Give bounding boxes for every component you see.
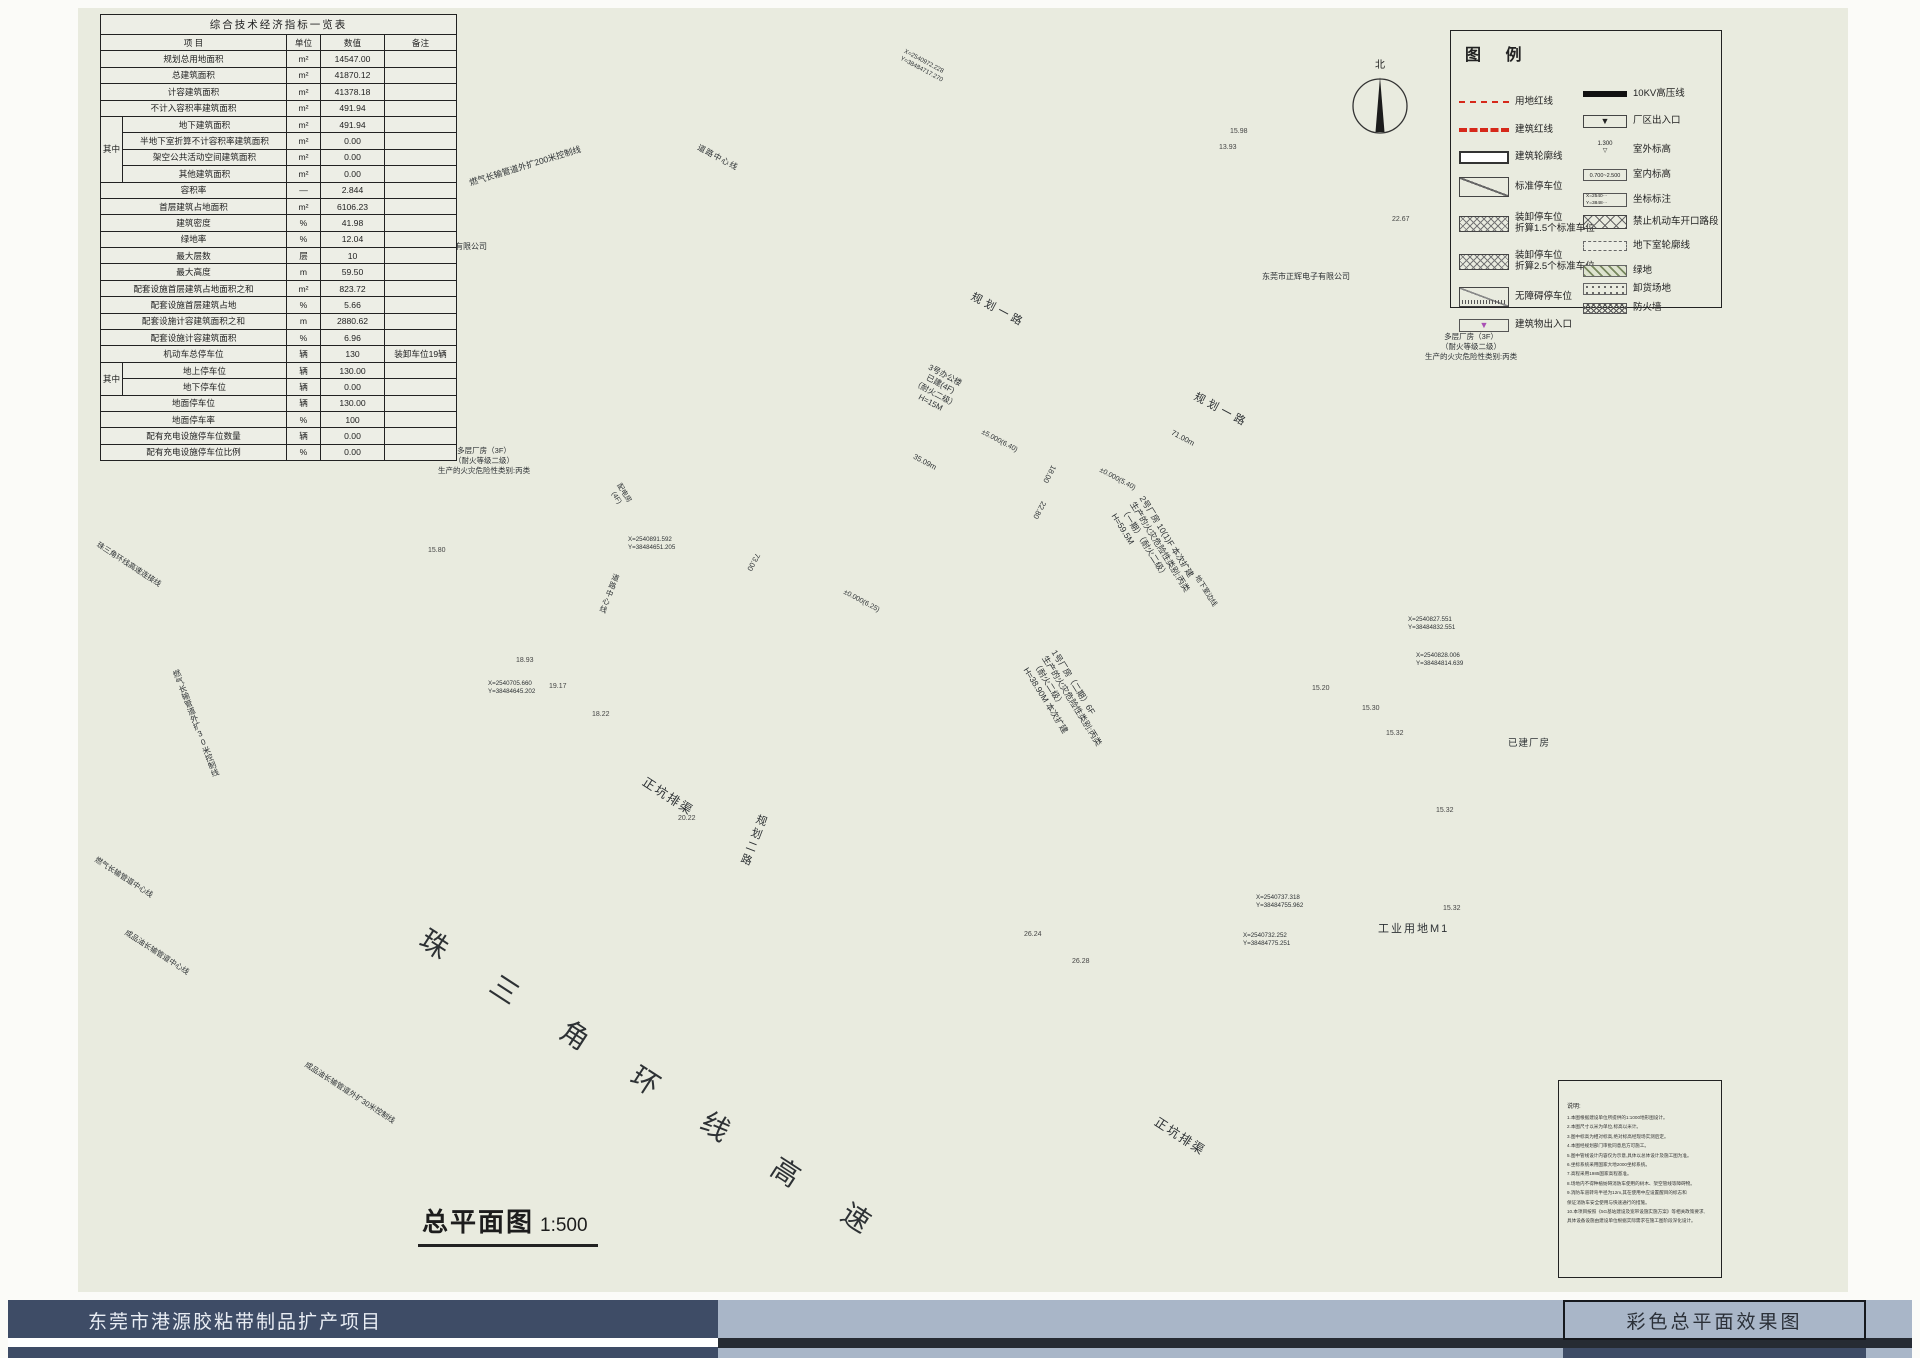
legend-item-label: 卸货场地 bbox=[1633, 284, 1671, 295]
spot-elevation: 15.80 bbox=[428, 546, 446, 555]
table-row: 其中地下建筑面积m²491.94 bbox=[101, 116, 457, 132]
table-cell: 其他建筑面积 bbox=[123, 166, 287, 182]
table-cell: 机动车总停车位 bbox=[101, 346, 287, 362]
table-cell: 总建筑面积 bbox=[101, 67, 287, 83]
map-label-dc1: 多层厂房（3F） （耐火等级二级） 生产的火灾危险性类别:丙类 bbox=[1425, 332, 1517, 361]
spot-elevation: 18.22 bbox=[592, 710, 610, 719]
table-cell: 0.00 bbox=[321, 166, 385, 182]
table-cell: 0.00 bbox=[321, 149, 385, 165]
legend-item: 装卸停车位 折算1.5个标准车位 bbox=[1459, 213, 1595, 235]
table-cell: 计容建筑面积 bbox=[101, 84, 287, 100]
intlvl-icon: 0.700~2.500 bbox=[1583, 169, 1627, 181]
table-cell: 项 目 bbox=[101, 35, 287, 51]
table-cell: 最大层数 bbox=[101, 248, 287, 264]
table-cell: % bbox=[287, 411, 321, 427]
table-cell: 10 bbox=[321, 248, 385, 264]
table-row: 绿地率%12.04 bbox=[101, 231, 457, 247]
table-cell bbox=[385, 411, 457, 427]
table-cell bbox=[385, 297, 457, 313]
legend-item-label: 无障碍停车位 bbox=[1515, 292, 1572, 303]
spot-elevation: 15.32 bbox=[1436, 806, 1454, 815]
table-cell: 0.00 bbox=[321, 379, 385, 395]
spot-elevation: 18.93 bbox=[516, 656, 534, 665]
table-cell: 0.00 bbox=[321, 133, 385, 149]
legend-item: X=2540··· Y=3848···坐标标注 bbox=[1583, 193, 1671, 207]
spot-elevation: 15.32 bbox=[1386, 729, 1404, 738]
note-line: 1.本图根据建设单位所提供的1:1000地形图设计。 bbox=[1567, 1113, 1715, 1122]
table-cell: 辆 bbox=[287, 346, 321, 362]
table-cell bbox=[385, 51, 457, 67]
table-cell bbox=[385, 198, 457, 214]
note-line: 6.坐标系统采用国家大地2000坐标系统。 bbox=[1567, 1160, 1715, 1169]
table-row: 地面停车位辆130.00 bbox=[101, 395, 457, 411]
notes-title: 说明: bbox=[1567, 1101, 1715, 1110]
table-row: 半地下室折算不计容积率建筑面积m²0.00 bbox=[101, 133, 457, 149]
table-cell: 5.66 bbox=[321, 297, 385, 313]
indicator-table: 综合技术经济指标一览表项 目单位数值备注规划总用地面积m²14547.00总建筑… bbox=[100, 14, 457, 461]
table-cell: 单位 bbox=[287, 35, 321, 51]
coord-icon: X=2540··· Y=3848··· bbox=[1583, 193, 1627, 207]
map-label-c6: X=2540737.318 Y=38484755.962 bbox=[1256, 894, 1303, 910]
table-row: 配套设施首层建筑占地%5.66 bbox=[101, 297, 457, 313]
table-cell: 辆 bbox=[287, 428, 321, 444]
legend-item: ▼建筑物出入口 bbox=[1459, 319, 1572, 332]
table-cell bbox=[385, 182, 457, 198]
table-cell: 0.00 bbox=[321, 428, 385, 444]
table-cell: 装卸车位19辆 bbox=[385, 346, 457, 362]
table-cell bbox=[385, 116, 457, 132]
legend-item-label: 地下室轮廓线 bbox=[1633, 241, 1690, 252]
table-cell: 辆 bbox=[287, 395, 321, 411]
acc-icon bbox=[1459, 287, 1509, 307]
spot-elevation: 15.30 bbox=[1362, 704, 1380, 713]
table-cell: 架空公共活动空间建筑面积 bbox=[123, 149, 287, 165]
table-cell: 6.96 bbox=[321, 330, 385, 346]
table-cell: % bbox=[287, 330, 321, 346]
legend-item: 标准停车位 bbox=[1459, 177, 1563, 197]
table-cell: 地下停车位 bbox=[123, 379, 287, 395]
note-line: 具体设备设施由建设单位根据实际需求在施工图阶段深化设计。 bbox=[1567, 1216, 1715, 1225]
legend-item-label: 绿地 bbox=[1633, 266, 1652, 277]
drawing-sheet: 规划一路规划一路规划二路规划二路道路中心线道路中心线燃气长输管道外扩200米控制… bbox=[0, 0, 1920, 1358]
noopen-icon bbox=[1583, 215, 1627, 229]
table-cell bbox=[385, 280, 457, 296]
note-line: 9.消防车道转弯半径为12m,其在使用中应设置醒目的标志和 bbox=[1567, 1188, 1715, 1197]
table-cell: 130.00 bbox=[321, 395, 385, 411]
table-cell: 地面停车率 bbox=[101, 411, 287, 427]
legend-item: 建筑轮廓线 bbox=[1459, 151, 1563, 164]
table-cell bbox=[385, 84, 457, 100]
table-cell bbox=[385, 264, 457, 280]
table-cell: m² bbox=[287, 198, 321, 214]
table-cell: 6106.23 bbox=[321, 198, 385, 214]
table-cell: 59.50 bbox=[321, 264, 385, 280]
sheet-title: 彩色总平面效果图 bbox=[1626, 1307, 1802, 1334]
table-row: 规划总用地面积m²14547.00 bbox=[101, 51, 457, 67]
stall15-icon bbox=[1459, 216, 1509, 232]
legend-item: 1.300▽室外标高 bbox=[1583, 141, 1671, 159]
table-cell: m² bbox=[287, 166, 321, 182]
table-cell: 2880.62 bbox=[321, 313, 385, 329]
table-cell: 地面停车位 bbox=[101, 395, 287, 411]
footer-bar2-left bbox=[8, 1347, 718, 1358]
base-icon bbox=[1583, 241, 1627, 251]
table-cell: 地上停车位 bbox=[123, 362, 287, 378]
table-cell: m² bbox=[287, 51, 321, 67]
legend-item: 用地红线 bbox=[1459, 97, 1553, 108]
green-icon bbox=[1583, 265, 1627, 277]
legend-item-label: 10KV高压线 bbox=[1633, 89, 1685, 100]
fire-icon bbox=[1583, 303, 1627, 314]
table-cell: 配有充电设施停车位比例 bbox=[101, 444, 287, 460]
drawing-title: 总平面图1:500 bbox=[418, 1202, 598, 1247]
table-cell bbox=[385, 428, 457, 444]
table-cell: 辆 bbox=[287, 379, 321, 395]
legend-item-label: 室内标高 bbox=[1633, 170, 1671, 181]
table-row: 最大层数层10 bbox=[101, 248, 457, 264]
legend-item: 禁止机动车开口路段 bbox=[1583, 215, 1719, 229]
legend-item-label: 坐标标注 bbox=[1633, 195, 1671, 206]
table-cell: m bbox=[287, 264, 321, 280]
table-cell: m² bbox=[287, 133, 321, 149]
map-label-gym1: 工业用地M1 bbox=[1378, 922, 1449, 936]
table-cell: 配套设施首层建筑占地面积之和 bbox=[101, 280, 287, 296]
table-cell: 地下建筑面积 bbox=[123, 116, 287, 132]
table-cell bbox=[385, 166, 457, 182]
map-label-c5: X=2540828.006 Y=38484814.639 bbox=[1416, 652, 1463, 668]
table-cell: 130.00 bbox=[321, 362, 385, 378]
table-cell: m² bbox=[287, 84, 321, 100]
legend-item-label: 建筑轮廓线 bbox=[1515, 152, 1563, 163]
legend-item: 10KV高压线 bbox=[1583, 89, 1685, 100]
stall-icon bbox=[1459, 177, 1509, 197]
table-cell: % bbox=[287, 444, 321, 460]
table-row: 其中地上停车位辆130.00 bbox=[101, 362, 457, 378]
table-cell: 41378.18 bbox=[321, 84, 385, 100]
unload-icon bbox=[1583, 283, 1627, 295]
table-cell: 配有充电设施停车位数量 bbox=[101, 428, 287, 444]
table-cell: m² bbox=[287, 280, 321, 296]
spot-elevation: 15.98 bbox=[1230, 127, 1248, 136]
spot-elevation: 26.24 bbox=[1024, 930, 1042, 939]
legend-item: 卸货场地 bbox=[1583, 283, 1671, 295]
north-arrow: 北 bbox=[1338, 56, 1422, 148]
spot-elevation: 15.20 bbox=[1312, 684, 1330, 693]
table-cell: 综合技术经济指标一览表 bbox=[101, 15, 457, 35]
table-row: 配有充电设施停车位比例%0.00 bbox=[101, 444, 457, 460]
project-title: 东莞市港源胶粘带制品扩产项目 bbox=[88, 1307, 382, 1334]
note-line: 保证消防车安全使用与快速通行的措施。 bbox=[1567, 1198, 1715, 1207]
table-cell: 其中 bbox=[101, 116, 123, 182]
extlvl-icon: 1.300▽ bbox=[1583, 141, 1627, 159]
legend-item: 无障碍停车位 bbox=[1459, 287, 1572, 307]
table-cell: m bbox=[287, 313, 321, 329]
table-cell: 最大高度 bbox=[101, 264, 287, 280]
table-cell: m² bbox=[287, 67, 321, 83]
note-line: 3.图中标高为相对标高,绝对标高经现场实测后定。 bbox=[1567, 1132, 1715, 1141]
map-label-c4: X=2540827.551 Y=38484832.551 bbox=[1408, 616, 1455, 632]
spot-elevation: 22.67 bbox=[1392, 215, 1410, 224]
legend-panel: 图 例 用地红线建筑红线建筑轮廓线标准停车位装卸停车位 折算1.5个标准车位装卸… bbox=[1450, 30, 1722, 308]
table-cell bbox=[385, 395, 457, 411]
table-cell: % bbox=[287, 297, 321, 313]
table-cell: 半地下室折算不计容积率建筑面积 bbox=[123, 133, 287, 149]
table-cell: % bbox=[287, 215, 321, 231]
table-cell: 备注 bbox=[385, 35, 457, 51]
sheet-title-box: 彩色总平面效果图 bbox=[1563, 1300, 1866, 1340]
table-cell: 14547.00 bbox=[321, 51, 385, 67]
spot-elevation: 19.17 bbox=[549, 682, 567, 691]
red-thick-icon bbox=[1459, 128, 1509, 132]
legend-item: 装卸停车位 折算2.5个标准车位 bbox=[1459, 251, 1595, 273]
table-row: 其他建筑面积m²0.00 bbox=[101, 166, 457, 182]
legend-item-label: 防火墙 bbox=[1633, 303, 1662, 314]
table-cell: 层 bbox=[287, 248, 321, 264]
table-cell: — bbox=[287, 182, 321, 198]
table-cell: 491.94 bbox=[321, 100, 385, 116]
table-cell: 容积率 bbox=[101, 182, 287, 198]
table-cell bbox=[385, 133, 457, 149]
table-row: 地面停车率%100 bbox=[101, 411, 457, 427]
table-cell: m² bbox=[287, 100, 321, 116]
legend-item-label: 室外标高 bbox=[1633, 145, 1671, 156]
note-line: 7.高程采用1985国家高程基准。 bbox=[1567, 1169, 1715, 1178]
hv-icon bbox=[1583, 91, 1627, 97]
table-cell: 100 bbox=[321, 411, 385, 427]
table-cell: 绿地率 bbox=[101, 231, 287, 247]
table-cell bbox=[385, 330, 457, 346]
map-label-yjcf: 已建厂房 bbox=[1508, 738, 1550, 750]
table-row: 机动车总停车位辆130装卸车位19辆 bbox=[101, 346, 457, 362]
note-line: 2.本图尺寸以米为单位,标高以米计。 bbox=[1567, 1122, 1715, 1131]
spot-elevation: 20.22 bbox=[678, 814, 696, 823]
table-cell bbox=[385, 100, 457, 116]
table-row: 首层建筑占地面积m²6106.23 bbox=[101, 198, 457, 214]
table-cell: % bbox=[287, 231, 321, 247]
map-label-c3: X=2540705.660 Y=38484645.202 bbox=[488, 680, 535, 696]
map-label-co2: 东莞市正辉电子有限公司 bbox=[1262, 272, 1350, 282]
table-row: 总建筑面积m²41870.12 bbox=[101, 67, 457, 83]
legend-item: 防火墙 bbox=[1583, 303, 1662, 314]
table-row: 建筑密度%41.98 bbox=[101, 215, 457, 231]
table-cell: 823.72 bbox=[321, 280, 385, 296]
outline-icon bbox=[1459, 151, 1509, 164]
note-line: 4.本图经规划部门审批同意后方可施工。 bbox=[1567, 1141, 1715, 1150]
gate-icon: ▼ bbox=[1583, 115, 1627, 128]
table-cell: 配套设施计容建筑面积 bbox=[101, 330, 287, 346]
table-row: 容积率—2.844 bbox=[101, 182, 457, 198]
table-cell: 首层建筑占地面积 bbox=[101, 198, 287, 214]
table-cell: 12.04 bbox=[321, 231, 385, 247]
table-cell bbox=[385, 248, 457, 264]
table-row: 配有充电设施停车位数量辆0.00 bbox=[101, 428, 457, 444]
table-cell bbox=[385, 379, 457, 395]
legend-title: 图 例 bbox=[1465, 41, 1531, 65]
table-cell: 491.94 bbox=[321, 116, 385, 132]
table-cell: m² bbox=[287, 149, 321, 165]
table-cell bbox=[385, 67, 457, 83]
table-cell bbox=[385, 149, 457, 165]
entry-icon: ▼ bbox=[1459, 319, 1509, 332]
note-line: 8.场地内不得种植妨碍消防车使用的树木、架空管线等障碍物。 bbox=[1567, 1179, 1715, 1188]
north-label: 北 bbox=[1375, 56, 1385, 71]
table-cell bbox=[385, 313, 457, 329]
footer-bar2-box bbox=[1563, 1348, 1866, 1358]
legend-item: ▼厂区出入口 bbox=[1583, 115, 1681, 128]
table-cell bbox=[385, 362, 457, 378]
table-row: 不计入容积率建筑面积m²491.94 bbox=[101, 100, 457, 116]
table-cell: 其中 bbox=[101, 362, 123, 395]
table-cell: 0.00 bbox=[321, 444, 385, 460]
table-row: 配套设施计容建筑面积之和m2880.62 bbox=[101, 313, 457, 329]
table-cell: 2.844 bbox=[321, 182, 385, 198]
map-label-c7: X=2540732.252 Y=38484775.251 bbox=[1243, 932, 1290, 948]
legend-item-label: 厂区出入口 bbox=[1633, 116, 1681, 127]
red-thin-icon bbox=[1459, 101, 1509, 103]
drawing-scale: 1:500 bbox=[540, 1215, 588, 1236]
table-cell: 数值 bbox=[321, 35, 385, 51]
table-row: 地下停车位辆0.00 bbox=[101, 379, 457, 395]
table-cell: m² bbox=[287, 116, 321, 132]
legend-item-label: 标准停车位 bbox=[1515, 182, 1563, 193]
table-cell: 配套设施计容建筑面积之和 bbox=[101, 313, 287, 329]
table-row: 最大高度m59.50 bbox=[101, 264, 457, 280]
note-line: 5.图中管线设计内容仅为示意,具体以总体设计及施工图为准。 bbox=[1567, 1151, 1715, 1160]
legend-item-label: 禁止机动车开口路段 bbox=[1633, 217, 1719, 228]
spot-elevation: 13.93 bbox=[1219, 143, 1237, 152]
stall25-icon bbox=[1459, 254, 1509, 270]
legend-item: 0.700~2.500室内标高 bbox=[1583, 169, 1671, 181]
map-label-c2: X=2540891.592 Y=38484651.205 bbox=[628, 536, 675, 552]
table-cell bbox=[385, 215, 457, 231]
footer-gap-left bbox=[8, 1338, 718, 1347]
note-line: 10.本项目按照《5G基站建设及宽带设施实施方案》等相关政策要求, bbox=[1567, 1207, 1715, 1216]
drawing-name: 总平面图 bbox=[422, 1207, 534, 1237]
table-cell: 辆 bbox=[287, 362, 321, 378]
table-cell: 41870.12 bbox=[321, 67, 385, 83]
legend-item: 建筑红线 bbox=[1459, 125, 1553, 136]
table-row: 计容建筑面积m²41378.18 bbox=[101, 84, 457, 100]
table-cell: 130 bbox=[321, 346, 385, 362]
legend-item-label: 建筑红线 bbox=[1515, 125, 1553, 136]
table-cell: 配套设施首层建筑占地 bbox=[101, 297, 287, 313]
spot-elevation: 26.28 bbox=[1072, 957, 1090, 966]
table-cell: 不计入容积率建筑面积 bbox=[101, 100, 287, 116]
spot-elevation: 15.32 bbox=[1443, 904, 1461, 913]
table-cell bbox=[385, 231, 457, 247]
table-cell: 规划总用地面积 bbox=[101, 51, 287, 67]
table-row: 配套设施首层建筑占地面积之和m²823.72 bbox=[101, 280, 457, 296]
table-cell bbox=[385, 444, 457, 460]
legend-item: 绿地 bbox=[1583, 265, 1652, 277]
table-cell: 建筑密度 bbox=[101, 215, 287, 231]
table-row: 架空公共活动空间建筑面积m²0.00 bbox=[101, 149, 457, 165]
legend-item-label: 建筑物出入口 bbox=[1515, 320, 1572, 331]
legend-item: 地下室轮廓线 bbox=[1583, 241, 1690, 252]
table-cell: 41.98 bbox=[321, 215, 385, 231]
notes-panel: 说明: 1.本图根据建设单位所提供的1:1000地形图设计。2.本图尺寸以米为单… bbox=[1558, 1080, 1722, 1278]
table-row: 配套设施计容建筑面积%6.96 bbox=[101, 330, 457, 346]
legend-item-label: 用地红线 bbox=[1515, 97, 1553, 108]
